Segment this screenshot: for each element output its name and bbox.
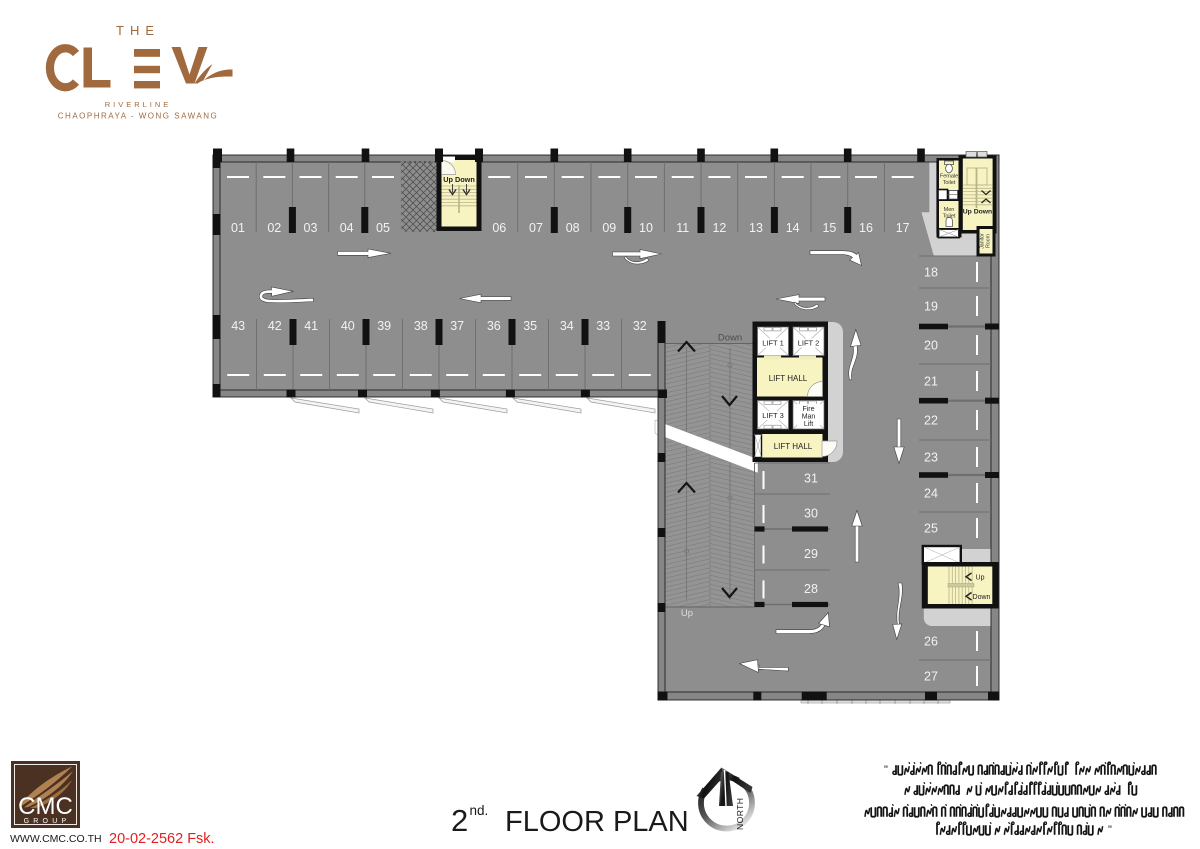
svg-text:17: 17 [896, 221, 910, 235]
svg-text:NORTH: NORTH [735, 798, 745, 830]
svg-text:12: 12 [712, 221, 726, 235]
svg-text:Fire: Fire [802, 406, 814, 413]
svg-text:31: 31 [804, 472, 818, 486]
svg-text:23: 23 [924, 451, 938, 465]
svg-text:01: 01 [231, 221, 245, 235]
svg-text:19: 19 [924, 300, 938, 314]
svg-text:08: 08 [566, 221, 580, 235]
svg-text:42: 42 [268, 319, 282, 333]
svg-text:Up Down: Up Down [963, 209, 992, 216]
svg-text:24: 24 [924, 487, 938, 501]
svg-text:2: 2 [451, 803, 468, 838]
svg-text:Men: Men [944, 207, 955, 213]
svg-text:Down: Down [718, 333, 742, 344]
svg-text:29: 29 [804, 547, 818, 561]
svg-text:Up: Up [976, 575, 985, 582]
svg-text:18: 18 [924, 266, 938, 280]
svg-text:nd.: nd. [470, 803, 489, 818]
svg-text:27: 27 [924, 670, 938, 684]
svg-text:30: 30 [804, 507, 818, 521]
svg-text:26: 26 [924, 635, 938, 649]
svg-text:36: 36 [487, 319, 501, 333]
svg-text:20-02-2562 Fsk.: 20-02-2562 Fsk. [109, 831, 215, 847]
svg-text:43: 43 [231, 319, 245, 333]
svg-text:20: 20 [924, 339, 938, 353]
svg-text:09: 09 [602, 221, 616, 235]
svg-text:FLOOR PLAN: FLOOR PLAN [505, 806, 689, 838]
svg-text:11: 11 [676, 221, 689, 235]
svg-text:38: 38 [414, 319, 428, 333]
svg-text:CMC: CMC [18, 793, 73, 820]
svg-text:10: 10 [639, 221, 653, 235]
svg-text:32: 32 [633, 319, 647, 333]
svg-text:Man: Man [802, 414, 816, 421]
svg-text:07: 07 [529, 221, 543, 235]
svg-text:": " [884, 764, 888, 776]
svg-text:Lift: Lift [804, 421, 813, 428]
svg-text:LIFT 2: LIFT 2 [798, 339, 820, 348]
svg-text:21: 21 [924, 375, 938, 389]
svg-text:13: 13 [749, 221, 763, 235]
svg-text:02: 02 [267, 221, 281, 235]
svg-text:34: 34 [560, 319, 574, 333]
svg-text:41: 41 [304, 319, 318, 333]
svg-text:CHAOPHRAYA - WONG SAWANG: CHAOPHRAYA - WONG SAWANG [58, 112, 218, 121]
svg-text:WWW.CMC.CO.TH: WWW.CMC.CO.TH [10, 833, 102, 845]
svg-text:Up: Up [681, 608, 693, 619]
svg-text:40: 40 [341, 319, 355, 333]
svg-text:37: 37 [450, 319, 464, 333]
svg-text:Female: Female [940, 174, 958, 180]
svg-text:Toilet: Toilet [943, 180, 956, 186]
svg-text:22: 22 [924, 414, 938, 428]
svg-text:LIFT HALL: LIFT HALL [774, 442, 813, 451]
svg-text:Down: Down [973, 594, 991, 601]
svg-text:15: 15 [822, 221, 836, 235]
svg-text:Up Down: Up Down [443, 175, 475, 184]
svg-text:THE: THE [116, 23, 160, 38]
svg-text:14: 14 [786, 221, 800, 235]
svg-text:LIFT 1: LIFT 1 [762, 339, 784, 348]
svg-text:28: 28 [804, 582, 818, 596]
svg-text:33: 33 [596, 319, 610, 333]
svg-text:35: 35 [523, 319, 537, 333]
svg-text:03: 03 [304, 221, 318, 235]
svg-text:GROUP: GROUP [24, 818, 71, 825]
svg-text:05: 05 [376, 221, 390, 235]
svg-text:16: 16 [859, 221, 873, 235]
svg-text:Room: Room [986, 234, 992, 248]
svg-text:39: 39 [377, 319, 391, 333]
svg-text:LIFT 3: LIFT 3 [762, 411, 784, 420]
svg-text:RIVERLINE: RIVERLINE [105, 100, 172, 109]
svg-text:LIFT HALL: LIFT HALL [769, 374, 808, 383]
svg-text:": " [1108, 824, 1112, 836]
svg-text:25: 25 [924, 522, 938, 536]
svg-text:06: 06 [492, 221, 506, 235]
svg-text:04: 04 [340, 221, 354, 235]
